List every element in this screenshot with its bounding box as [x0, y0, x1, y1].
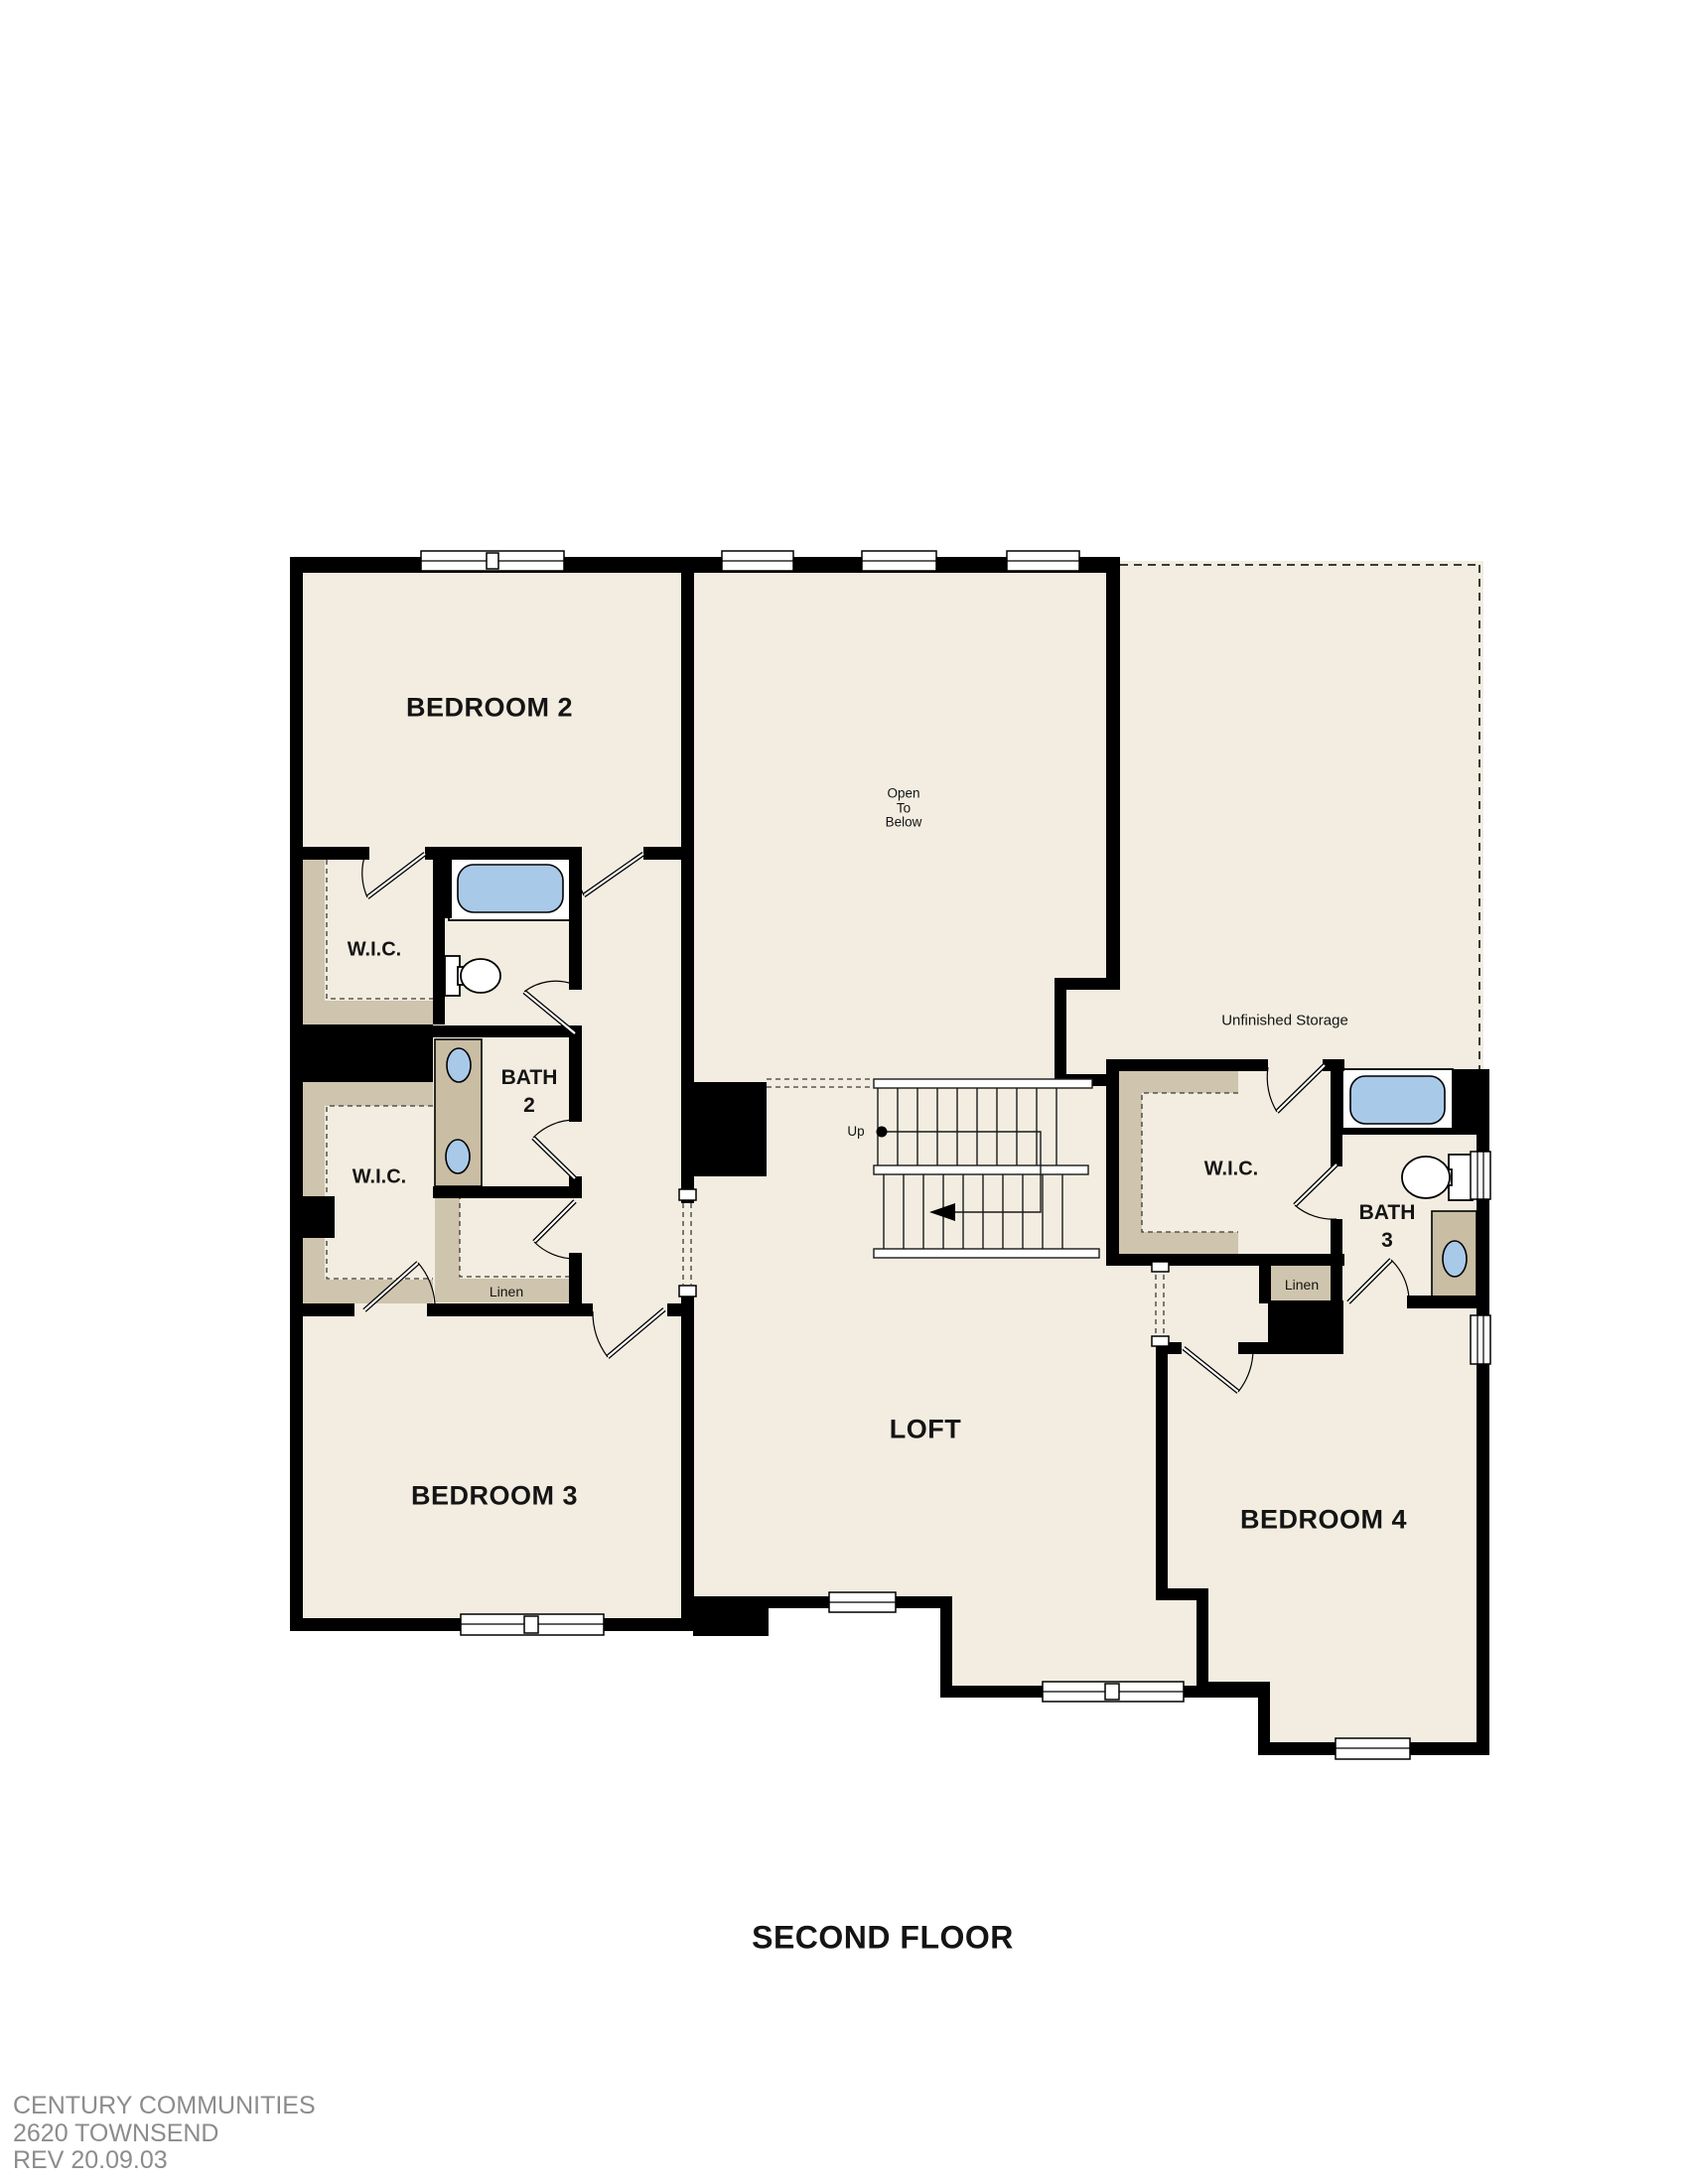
room-label-wic-right: W.I.C.: [1204, 1159, 1258, 1181]
room-label-bath3: BATH 3: [1359, 1199, 1416, 1255]
page-title: SECOND FLOOR: [752, 1920, 1014, 1957]
bathtub-icon-bath2: [449, 857, 571, 920]
footer-model: 2620 TOWNSEND: [13, 2120, 316, 2148]
room-label-wic-left-upper: W.I.C.: [348, 939, 401, 962]
toilet-icon-bath2: [445, 956, 500, 996]
room-label-bedroom4: BEDROOM 4: [1240, 1505, 1407, 1536]
room-label-linen-right: Linen: [1285, 1277, 1319, 1293]
room-label-bedroom2: BEDROOM 2: [406, 693, 573, 724]
room-label-open-to-below: Open To Below: [886, 786, 922, 830]
footer-company: CENTURY COMMUNITIES: [13, 2093, 316, 2120]
floorplan-page: BEDROOM 2 BEDROOM 3 BEDROOM 4 LOFT W.I.C…: [0, 0, 1688, 2184]
toilet-icon-bath3: [1402, 1155, 1473, 1200]
vanity-sink-bath3: [1432, 1211, 1477, 1297]
room-label-bath2: BATH 2: [501, 1064, 558, 1120]
stair-up-label: Up: [847, 1125, 864, 1140]
room-label-unfinished-storage: Unfinished Storage: [1221, 1013, 1348, 1029]
bathtub-icon-bath3: [1342, 1069, 1453, 1130]
room-label-bedroom3: BEDROOM 3: [411, 1481, 578, 1512]
stair-up-dot: [877, 1127, 888, 1138]
floorplan-drawing: [0, 0, 1688, 2184]
room-label-loft: LOFT: [890, 1415, 961, 1445]
vanity-sink-bath2: [435, 1039, 482, 1186]
room-label-linen-left: Linen: [490, 1284, 523, 1299]
footer-block: CENTURY COMMUNITIES 2620 TOWNSEND REV 20…: [13, 2093, 316, 2175]
room-label-wic-left-lower: W.I.C.: [352, 1166, 406, 1189]
footer-revision: REV 20.09.03: [13, 2147, 316, 2175]
